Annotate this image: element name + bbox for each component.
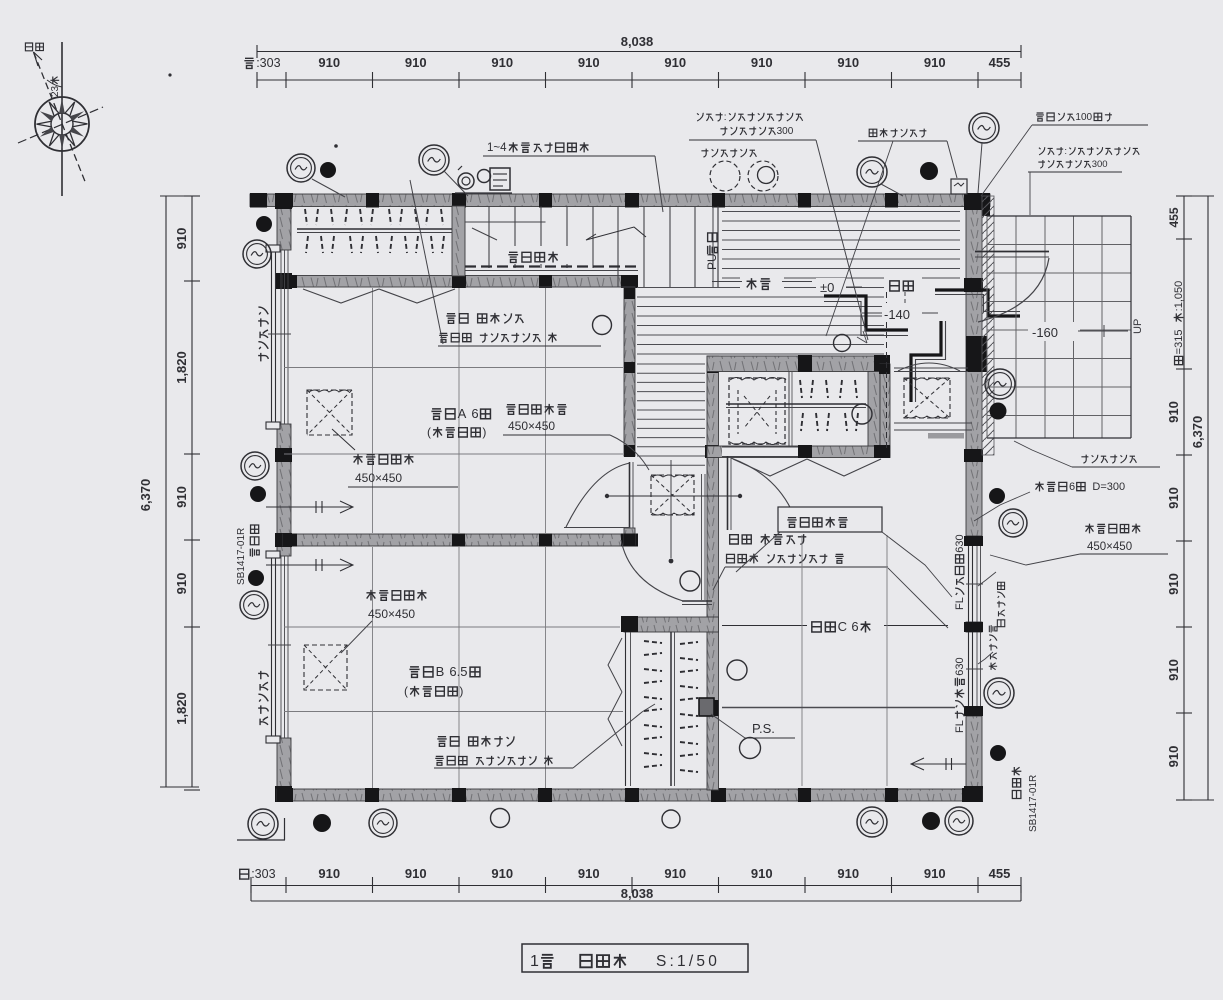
svg-text:910: 910 xyxy=(174,228,189,250)
svg-text:1: 1 xyxy=(530,953,539,970)
svg-text:910: 910 xyxy=(837,55,859,70)
svg-text::: : xyxy=(1064,146,1067,157)
svg-text:FL: FL xyxy=(954,720,966,733)
svg-text:SB1417-01R: SB1417-01R xyxy=(1028,775,1039,832)
svg-text:6,370: 6,370 xyxy=(138,479,153,512)
svg-text:(: ( xyxy=(427,425,431,439)
svg-text:910: 910 xyxy=(1166,746,1181,768)
svg-text:1,820: 1,820 xyxy=(174,351,189,384)
svg-text:910: 910 xyxy=(578,55,600,70)
svg-text:C: C xyxy=(838,619,847,634)
svg-text::303: :303 xyxy=(251,867,275,881)
svg-text:A: A xyxy=(458,406,467,421)
svg-text::: : xyxy=(724,112,727,123)
svg-text:PU: PU xyxy=(705,253,719,270)
svg-text:±0: ±0 xyxy=(820,280,834,295)
svg-text:630: 630 xyxy=(954,534,966,552)
svg-text:D=300: D=300 xyxy=(1092,481,1125,493)
svg-text:6: 6 xyxy=(471,406,478,421)
svg-text:6: 6 xyxy=(1069,481,1075,493)
svg-text:450×450: 450×450 xyxy=(1087,541,1132,553)
svg-text:): ) xyxy=(459,684,463,698)
svg-text:8,038: 8,038 xyxy=(621,34,654,49)
svg-text:910: 910 xyxy=(405,55,427,70)
svg-text:450×450: 450×450 xyxy=(368,607,415,621)
svg-text:630: 630 xyxy=(954,657,966,675)
svg-text:): ) xyxy=(482,425,486,439)
svg-text:300: 300 xyxy=(777,126,794,137)
svg-text:910: 910 xyxy=(174,486,189,508)
svg-text:450×450: 450×450 xyxy=(355,471,402,485)
svg-text:1~4: 1~4 xyxy=(487,142,507,154)
svg-text:23: 23 xyxy=(50,85,61,97)
svg-text:910: 910 xyxy=(491,866,513,881)
svg-text:910: 910 xyxy=(491,55,513,70)
svg-text:910: 910 xyxy=(837,866,859,881)
svg-text:910: 910 xyxy=(751,866,773,881)
svg-text:UP: UP xyxy=(1132,319,1144,334)
svg-text:B: B xyxy=(436,664,445,679)
svg-text:(: ( xyxy=(404,684,408,698)
svg-text:6.5: 6.5 xyxy=(449,664,467,679)
svg-text:910: 910 xyxy=(318,866,340,881)
svg-text::1,050: :1,050 xyxy=(1173,281,1185,312)
svg-text:=315: =315 xyxy=(1173,330,1185,355)
svg-text:1,820: 1,820 xyxy=(174,692,189,725)
svg-text:S:1/50: S:1/50 xyxy=(656,953,720,970)
svg-text:910: 910 xyxy=(751,55,773,70)
svg-text:910: 910 xyxy=(578,866,600,881)
svg-text:455: 455 xyxy=(989,55,1011,70)
svg-text:100: 100 xyxy=(1075,112,1092,123)
svg-text:910: 910 xyxy=(924,866,946,881)
svg-text:6,370: 6,370 xyxy=(1190,416,1205,449)
svg-text:910: 910 xyxy=(1166,659,1181,681)
svg-text:910: 910 xyxy=(318,55,340,70)
svg-text:8,038: 8,038 xyxy=(621,886,654,901)
svg-text:-160: -160 xyxy=(1032,325,1058,340)
svg-text:910: 910 xyxy=(1166,487,1181,509)
svg-text:FL: FL xyxy=(954,597,966,610)
svg-text:455: 455 xyxy=(989,866,1011,881)
svg-text:910: 910 xyxy=(174,573,189,595)
svg-text:455: 455 xyxy=(1167,207,1181,227)
svg-text:-140: -140 xyxy=(884,307,910,322)
svg-text:300: 300 xyxy=(1092,159,1108,170)
svg-text:SB1417-01R: SB1417-01R xyxy=(236,528,247,585)
svg-text:6: 6 xyxy=(851,619,858,634)
svg-text::303: :303 xyxy=(256,56,280,70)
svg-text:910: 910 xyxy=(405,866,427,881)
svg-text:P.S.: P.S. xyxy=(752,721,775,736)
svg-text:910: 910 xyxy=(924,55,946,70)
svg-text:910: 910 xyxy=(1166,573,1181,595)
svg-text:910: 910 xyxy=(664,866,686,881)
svg-text:910: 910 xyxy=(1166,401,1181,423)
svg-text:450×450: 450×450 xyxy=(508,419,555,433)
svg-text:910: 910 xyxy=(664,55,686,70)
